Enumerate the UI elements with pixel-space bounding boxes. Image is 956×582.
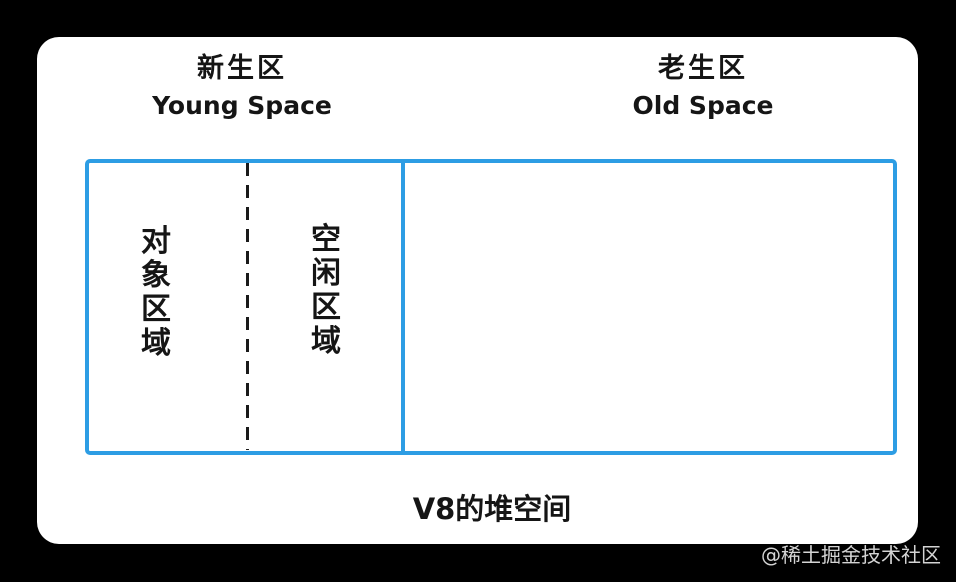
- old-space-title-en: Old Space: [593, 92, 813, 120]
- young-space-title-zh: 新生区: [132, 54, 352, 84]
- young-space-title-en: Young Space: [132, 92, 352, 120]
- heap-box-outline: [85, 159, 897, 455]
- diagram-card: 新生区 Young Space 老生区 Old Space 对象区域 空闲区域 …: [37, 37, 918, 544]
- young-space-header: 新生区 Young Space: [132, 54, 352, 120]
- old-space-header: 老生区 Old Space: [593, 54, 813, 120]
- object-area-label: 对象区域: [139, 225, 173, 361]
- diagram-caption: V8的堆空间: [342, 493, 642, 525]
- diagram-stage: 新生区 Young Space 老生区 Old Space 对象区域 空闲区域 …: [0, 0, 956, 582]
- free-area-label: 空闲区域: [309, 223, 343, 359]
- watermark-text: @稀土掘金技术社区: [761, 543, 941, 567]
- young-old-divider-line: [401, 161, 405, 453]
- semispace-dashed-divider: [246, 163, 249, 450]
- old-space-title-zh: 老生区: [593, 54, 813, 84]
